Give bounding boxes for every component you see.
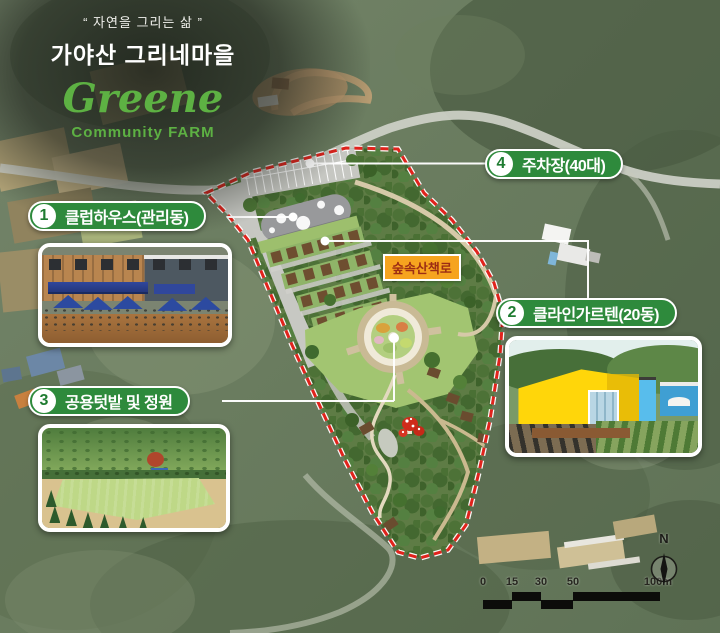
photo-clubhouse [38, 243, 232, 347]
header: “ 자연을 그리는 삶 ” 가야산 그리네마을 Greene Community… [18, 12, 268, 141]
clubhouse-windows [49, 259, 220, 271]
scale-segment [512, 592, 541, 601]
callout-number: 2 [500, 301, 524, 325]
conifer [99, 514, 110, 531]
callout-kleingarten: 2 클라인가르텐(20동) [496, 298, 677, 328]
photo-garden-image [42, 428, 226, 528]
callout-label: 클라인가르텐(20동) [533, 301, 659, 325]
callout-label: 주차장(40대) [522, 152, 605, 176]
conifer [49, 506, 60, 523]
clubhouse-chairs [42, 307, 228, 332]
scale-tick: 30 [535, 576, 547, 588]
photo-kleingarten [505, 336, 702, 457]
red-tree [147, 452, 164, 467]
hills-texture [42, 428, 226, 472]
photo-garden [38, 424, 230, 532]
scale-segment [483, 600, 512, 609]
conifer [117, 516, 128, 532]
photo-kleingarten-image [509, 340, 698, 453]
lawn-field [53, 478, 215, 520]
site-plan-poster: “ 자연을 그리는 삶 ” 가야산 그리네마을 Greene Community… [0, 0, 720, 633]
callout-garden: 3 공용텃밭 및 정원 [28, 386, 190, 416]
compass: N [642, 531, 686, 593]
scale-tick: 50 [567, 576, 579, 588]
scale-segment [541, 600, 573, 609]
scale-tick: 15 [506, 576, 518, 588]
callout-label: 공용텃밭 및 정원 [65, 389, 172, 413]
callout-parking: 4 주차장(40대) [485, 149, 623, 179]
clubhouse-awning [48, 282, 148, 294]
brand-logo-subtext: Community FARM [18, 124, 268, 141]
clubhouse-awning-2 [154, 284, 195, 294]
callout-number: 3 [32, 389, 56, 413]
shrub-row [42, 470, 226, 479]
compass-north-label: N [642, 531, 686, 546]
header-quote: “ 자연을 그리는 삶 ” [18, 12, 268, 31]
conifer [82, 512, 93, 529]
callout-number: 1 [32, 204, 56, 228]
cottage-deck [532, 428, 630, 438]
page-title: 가야산 그리네마을 [18, 36, 268, 70]
brand-logo: Greene [18, 78, 268, 120]
callout-label: 클럽하우스(관리동) [65, 204, 188, 228]
photo-clubhouse-image [42, 247, 228, 343]
scale-tick: 0 [480, 576, 486, 588]
conifer [66, 509, 77, 526]
compass-rose [642, 546, 686, 592]
callout-number: 4 [489, 152, 513, 176]
callout-clubhouse: 1 클럽하우스(관리동) [28, 201, 206, 231]
conifer [46, 490, 57, 507]
white-umbrella [668, 397, 690, 406]
trail-label: 숲속산책로 [383, 254, 461, 281]
